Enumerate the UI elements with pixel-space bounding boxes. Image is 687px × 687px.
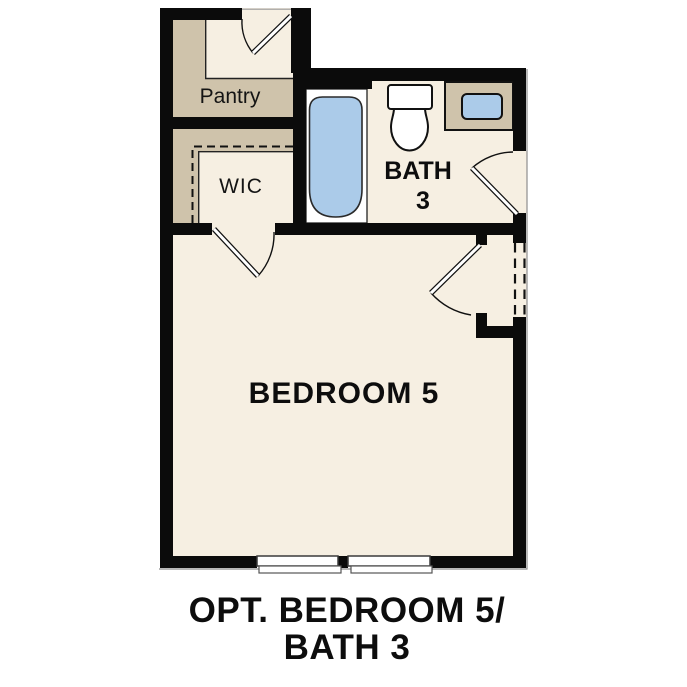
caption-line2: BATH 3 [284,628,411,667]
bathtub-icon [310,97,363,217]
wall-tub-head [293,68,372,89]
window-icon [348,556,430,566]
caption-line1: OPT. BEDROOM 5/ [189,591,506,630]
pantry-door-opening-floor [242,8,291,20]
toilet-bowl-icon [391,109,428,150]
wall-right-lower [513,317,526,568]
floor-plan-svg: Pantry WIC BATH 3 BEDROOM 5 OPT. BEDROOM… [0,0,687,687]
wall-left [160,8,173,568]
floor-plan-figure: Pantry WIC BATH 3 BEDROOM 5 OPT. BEDROOM… [0,0,687,687]
wall-bottom-right [430,556,526,568]
wall-mid-band-left [160,223,212,235]
wic-label: WIC [219,175,263,198]
window-icon [257,556,338,566]
window-sill [351,566,432,573]
wall-bedroom-door-jamb [476,233,487,245]
wall-mid-band-right [275,223,526,235]
window-sill [259,566,341,573]
wall-bath-right-upper [513,68,526,151]
sink-icon [462,94,502,119]
wall-top-pantry [160,8,242,20]
pantry-label: Pantry [200,85,261,108]
bath-label-line2: 3 [416,187,430,215]
bath-label-line1: BATH [384,157,452,185]
wall-pantry-wic-divider [160,117,306,129]
toilet-tank-icon [388,85,432,109]
bedroom-label: BEDROOM 5 [249,377,440,410]
wall-bottom-left [160,556,257,568]
